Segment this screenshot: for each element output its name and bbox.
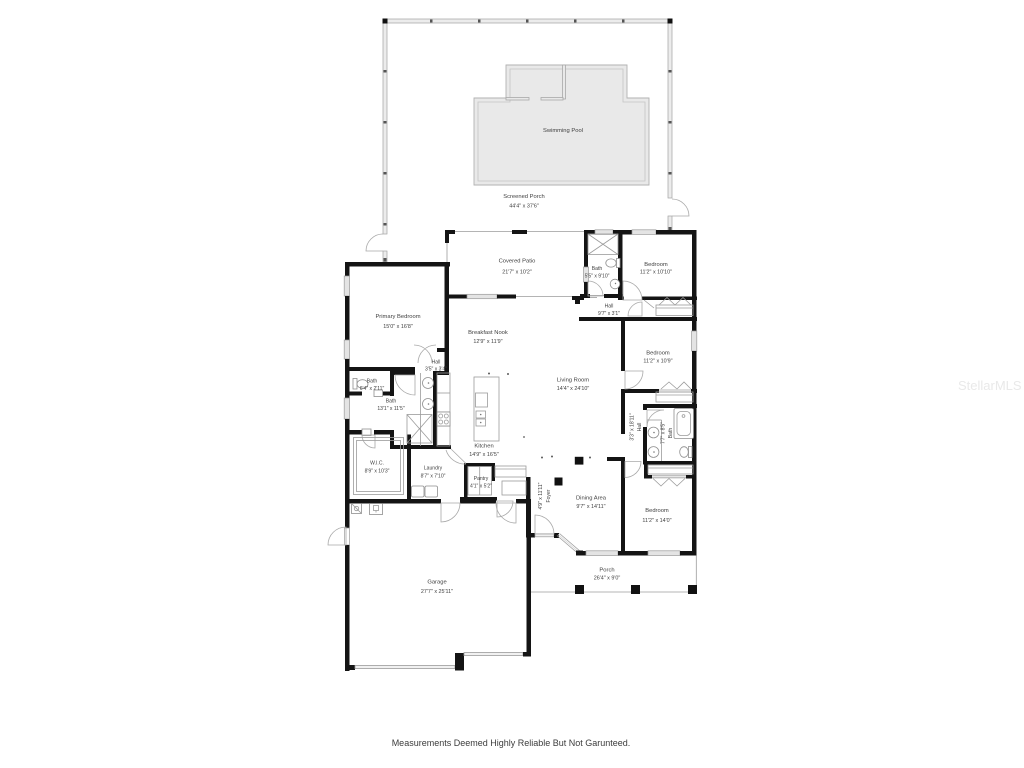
svg-text:14'4" x 24'10": 14'4" x 24'10" — [557, 386, 590, 392]
svg-text:Hall: Hall — [605, 304, 614, 310]
svg-text:4'9" x 11'11": 4'9" x 11'11" — [538, 482, 544, 509]
svg-text:Kitchen: Kitchen — [474, 444, 493, 450]
svg-text:3'5" x 3'4": 3'5" x 3'4" — [425, 367, 447, 373]
svg-text:Bedroom: Bedroom — [644, 262, 668, 268]
svg-text:44'4" x 37'6": 44'4" x 37'6" — [509, 204, 539, 210]
svg-text:26'4" x 9'0": 26'4" x 9'0" — [594, 576, 621, 582]
svg-text:7'7" x 8'5": 7'7" x 8'5" — [661, 422, 667, 444]
svg-text:Breakfast Nook: Breakfast Nook — [468, 330, 508, 336]
svg-text:14'9" x 16'5": 14'9" x 16'5" — [469, 452, 499, 458]
svg-text:Covered Patio: Covered Patio — [499, 259, 536, 265]
svg-text:12'9" x 11'9": 12'9" x 11'9" — [473, 339, 502, 345]
svg-text:8'9" x 10'3": 8'9" x 10'3" — [365, 469, 390, 475]
svg-text:Living Room: Living Room — [557, 378, 589, 384]
svg-text:11'2" x 10'10": 11'2" x 10'10" — [640, 270, 672, 276]
svg-text:Garage: Garage — [427, 580, 446, 586]
svg-text:11'2" x 10'9": 11'2" x 10'9" — [643, 359, 672, 365]
svg-text:5'5" x 9'10": 5'5" x 9'10" — [585, 274, 610, 280]
svg-text:Bedroom: Bedroom — [645, 508, 669, 514]
svg-text:13'1" x 11'5": 13'1" x 11'5" — [377, 406, 405, 412]
svg-text:W.I.C.: W.I.C. — [370, 461, 384, 467]
svg-text:Pantry: Pantry — [474, 476, 489, 482]
svg-text:Swimming Pool: Swimming Pool — [543, 128, 583, 134]
svg-text:StellarMLS: StellarMLS — [958, 378, 1022, 393]
svg-text:Foyer: Foyer — [546, 489, 552, 502]
svg-text:11'2" x 14'0": 11'2" x 14'0" — [642, 518, 671, 524]
svg-text:21'7" x 10'2": 21'7" x 10'2" — [502, 270, 532, 276]
svg-text:Bedroom: Bedroom — [646, 351, 670, 357]
svg-text:3'3" x 18'11": 3'3" x 18'11" — [630, 413, 636, 441]
svg-text:Bath: Bath — [592, 266, 603, 272]
svg-text:9'7" x 3'1": 9'7" x 3'1" — [598, 311, 620, 317]
svg-text:9'7" x 14'11": 9'7" x 14'11" — [576, 504, 605, 510]
svg-text:Hall: Hall — [637, 423, 643, 432]
svg-text:15'0" x 16'8": 15'0" x 16'8" — [383, 324, 413, 330]
svg-text:Bath: Bath — [386, 399, 397, 405]
svg-text:Screened Porch: Screened Porch — [503, 194, 545, 200]
svg-text:8'7" x 7'10": 8'7" x 7'10" — [421, 474, 446, 480]
svg-text:Laundry: Laundry — [424, 466, 443, 472]
svg-text:Bath: Bath — [668, 428, 674, 439]
svg-text:Bath: Bath — [367, 379, 378, 385]
svg-text:4'1" x 5'2": 4'1" x 5'2" — [470, 484, 492, 490]
svg-text:Hall: Hall — [432, 360, 441, 366]
svg-text:Porch: Porch — [599, 568, 614, 574]
svg-text:Dining Area: Dining Area — [576, 496, 607, 502]
svg-text:6'4" x 2'11": 6'4" x 2'11" — [360, 386, 385, 392]
svg-text:27'7" x 25'11": 27'7" x 25'11" — [421, 589, 453, 595]
svg-text:Measurements Deemed Highly Rel: Measurements Deemed Highly Reliable But … — [392, 738, 631, 748]
svg-text:Primary Bedroom: Primary Bedroom — [375, 314, 420, 320]
